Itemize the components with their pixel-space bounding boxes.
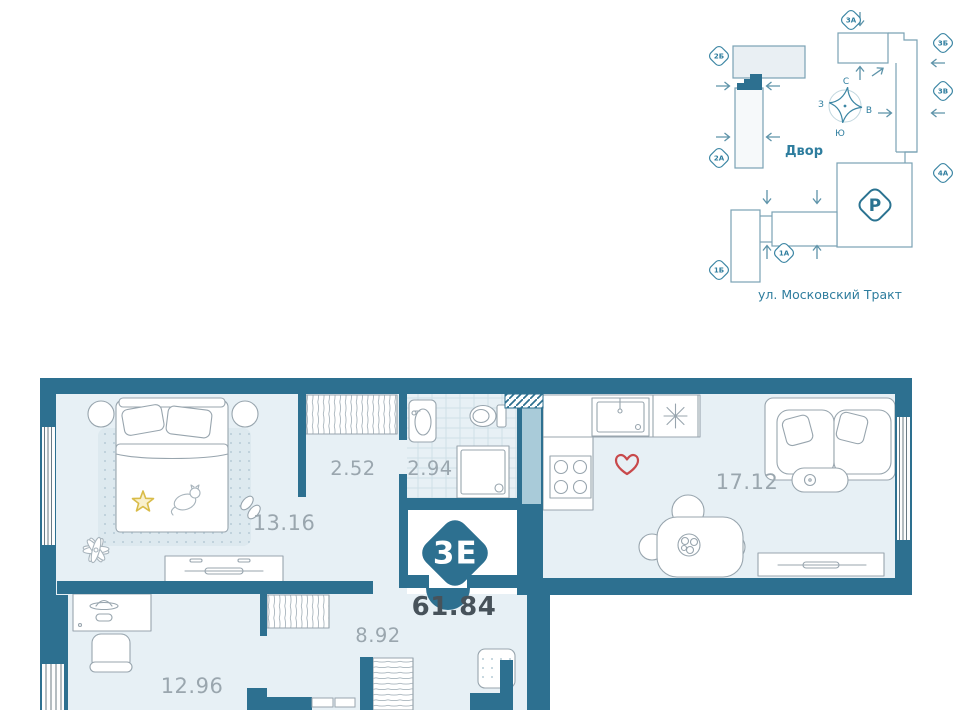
badge-2b: 2Б — [708, 45, 731, 68]
nightstand — [232, 401, 258, 427]
shower — [457, 446, 509, 498]
svg-text:2А: 2А — [714, 155, 725, 163]
kitchen-living-area-label: 17.12 — [716, 470, 779, 494]
cabinet-area-label: 12.96 — [161, 674, 224, 698]
door-panels — [312, 698, 355, 707]
unit-type-diamond: 3Е — [417, 515, 493, 591]
hallway-wardrobe — [306, 395, 397, 434]
svg-text:3Б: 3Б — [938, 40, 948, 48]
coffee-table — [792, 468, 848, 492]
street-label: ул. Московский Тракт — [758, 287, 902, 302]
site-buildings — [731, 33, 917, 282]
building-3bv-shape — [888, 33, 917, 163]
svg-text:2Б: 2Б — [714, 53, 724, 61]
svg-text:3В: 3В — [938, 88, 948, 96]
building-3a-shape — [838, 33, 888, 63]
compass-north-label: С — [843, 77, 849, 87]
svg-text:4А: 4А — [938, 170, 949, 178]
unit-type-label: 3Е — [433, 535, 478, 571]
bedroom-window — [42, 427, 55, 545]
hallway-area-label: 2.52 — [330, 457, 375, 480]
toilet — [470, 405, 506, 427]
badge-2a: 2А — [708, 147, 731, 170]
svg-text:1Б: 1Б — [714, 267, 724, 275]
vent-duct — [522, 408, 541, 504]
office-chair — [90, 634, 132, 672]
badge-3a: 3А — [840, 9, 863, 32]
site-plan: С Ю З В 2Б 2А 3А 3Б — [700, 0, 960, 320]
svg-text:1А: 1А — [779, 250, 790, 258]
kitchen-sink — [592, 398, 649, 436]
total-area-label: 61.84 — [404, 592, 504, 622]
svg-text:3А: 3А — [846, 17, 857, 25]
cabinet-window — [42, 664, 64, 710]
building-2b-shape — [733, 46, 805, 78]
living-window — [897, 417, 910, 540]
badge-1b: 1Б — [708, 259, 731, 282]
appliance-unit — [653, 395, 698, 437]
bedroom-area-label: 13.16 — [253, 511, 316, 535]
courtyard-label: Двор — [785, 144, 823, 159]
compass-east-label: В — [866, 106, 872, 116]
stove — [550, 456, 591, 498]
building-1b-shape — [731, 210, 760, 282]
badge-3v: 3В — [932, 80, 955, 103]
bathroom-area-label: 2.94 — [407, 457, 452, 480]
corridor-wardrobe-left — [267, 595, 329, 628]
bed — [116, 398, 228, 532]
desk — [73, 594, 151, 631]
badge-4a: 4А — [932, 162, 955, 185]
corridor-area-label: 8.92 — [355, 624, 400, 647]
building-1a-shape — [772, 212, 837, 246]
corridor-wardrobe-bottom — [373, 658, 413, 710]
compass-south-label: Ю — [835, 129, 845, 139]
badge-3b: 3Б — [932, 32, 955, 55]
building-2a-shape — [735, 88, 763, 168]
floorplan-page: С Ю З В 2Б 2А 3А 3Б — [0, 0, 960, 710]
compass-west-label: З — [818, 100, 824, 110]
sink — [409, 400, 436, 442]
nightstand — [88, 401, 114, 427]
compass-rose: С Ю З В — [818, 77, 872, 139]
tv-stand — [758, 553, 884, 576]
svg-text:Р: Р — [869, 196, 881, 216]
unit-type-badge: 3Е — [416, 514, 494, 592]
